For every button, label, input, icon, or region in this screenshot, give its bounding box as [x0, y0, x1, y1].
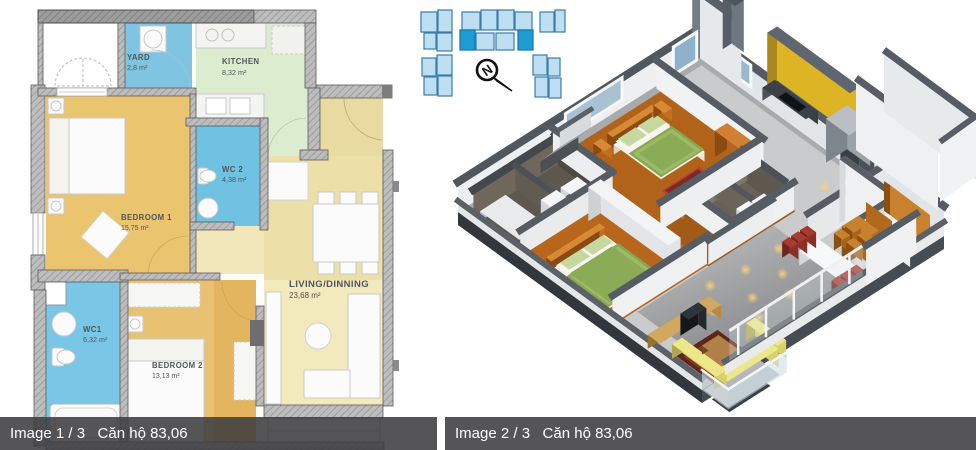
- svg-text:8,32 m²: 8,32 m²: [222, 68, 247, 77]
- svg-text:6,32 m²: 6,32 m²: [83, 335, 108, 344]
- svg-text:BEDROOM 1: BEDROOM 1: [121, 213, 172, 222]
- svg-text:LIVING/DINNING: LIVING/DINNING: [289, 279, 369, 290]
- svg-text:BEDROOM 2: BEDROOM 2: [152, 361, 203, 370]
- svg-text:4,38 m²: 4,38 m²: [222, 175, 247, 184]
- svg-text:13,13 m²: 13,13 m²: [152, 373, 180, 380]
- svg-text:YARD: YARD: [127, 53, 150, 62]
- svg-text:15,75 m²: 15,75 m²: [121, 225, 149, 232]
- svg-text:KITCHEN: KITCHEN: [222, 57, 259, 66]
- svg-text:23,68 m²: 23,68 m²: [289, 291, 321, 300]
- svg-text:2,8 m²: 2,8 m²: [127, 63, 148, 72]
- svg-text:WC1: WC1: [83, 325, 102, 334]
- svg-text:WC 2: WC 2: [222, 165, 243, 174]
